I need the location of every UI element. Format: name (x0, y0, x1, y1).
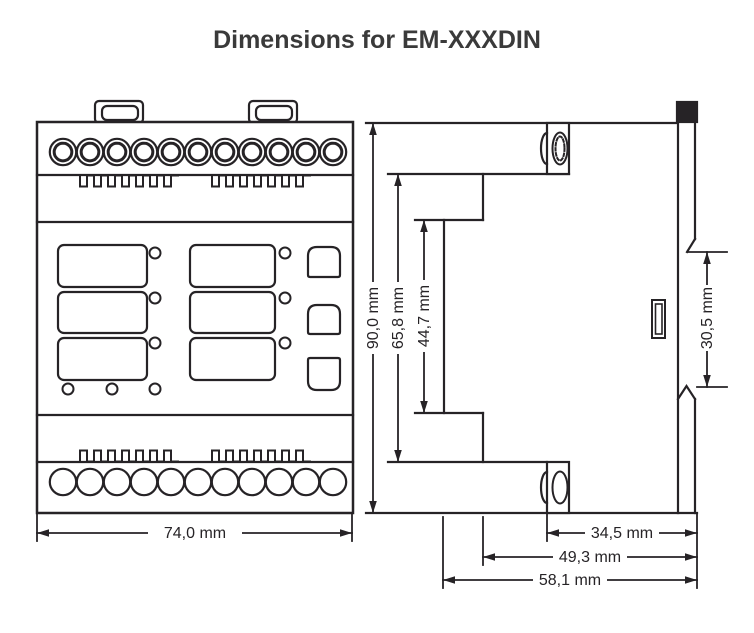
dim-front-width-label: 74,0 mm (164, 525, 226, 542)
dim-mid-depth-label: 49,3 mm (559, 549, 621, 566)
front-view (37, 101, 353, 513)
dim-inner-height-label: 65,8 mm (390, 287, 407, 349)
dim-clip-height-label: 30,5 mm (699, 287, 716, 349)
dim-face-height-label: 44,7 mm (416, 285, 433, 347)
drawing-canvas: Dimensions for EM-XXXDIN (0, 0, 754, 633)
side-terminal-bottom (541, 462, 569, 513)
front-body-outline (37, 122, 353, 513)
mounting-tabs (95, 101, 297, 123)
side-terminal-top (541, 123, 569, 174)
dim-overall-depth-label: 58,1 mm (539, 572, 601, 589)
dim-top-depth-label: 34,5 mm (591, 525, 653, 542)
din-clip-release (677, 102, 697, 122)
din-clip (678, 386, 695, 513)
dim-overall-height-label: 90,0 mm (365, 287, 382, 349)
dimension-drawing: 74,0 mm 90,0 mm 65,8 mm 44,7 mm 30,5 mm … (0, 0, 754, 633)
rail-slot (652, 300, 665, 338)
